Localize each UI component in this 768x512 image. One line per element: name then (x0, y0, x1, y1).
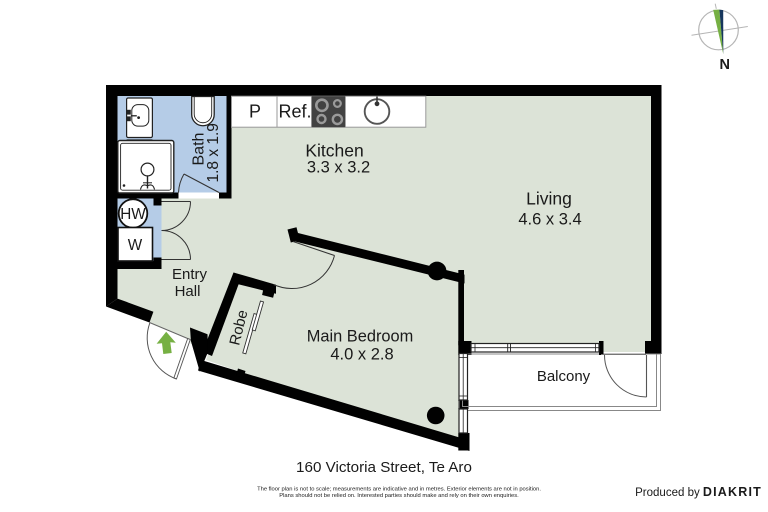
svg-text:HW: HW (120, 206, 146, 223)
svg-text:Produced by DIAKRIT: Produced by DIAKRIT (635, 485, 762, 499)
svg-text:Main Bedroom: Main Bedroom (307, 328, 414, 346)
svg-text:Entry: Entry (172, 266, 208, 283)
svg-text:1.8 x 1.9: 1.8 x 1.9 (205, 123, 222, 182)
svg-text:Balcony: Balcony (537, 368, 591, 385)
svg-text:Hall: Hall (175, 283, 201, 300)
svg-text:Living: Living (526, 189, 572, 209)
svg-text:4.0 x 2.8: 4.0 x 2.8 (330, 346, 393, 364)
svg-text:P: P (249, 102, 261, 122)
svg-text:Kitchen: Kitchen (305, 141, 363, 161)
svg-text:N: N (720, 57, 730, 73)
svg-text:Ref.: Ref. (278, 102, 311, 122)
svg-text:The floor plan is not to scale: The floor plan is not to scale; measurem… (257, 487, 541, 493)
svg-text:W: W (128, 237, 143, 254)
svg-text:4.6 x 3.4: 4.6 x 3.4 (518, 211, 581, 229)
svg-text:Plans should not be relied on.: Plans should not be relied on. Intereste… (279, 493, 519, 499)
svg-text:3.3 x 3.2: 3.3 x 3.2 (307, 159, 370, 177)
svg-text:160 Victoria Street, Te Aro: 160 Victoria Street, Te Aro (296, 459, 472, 476)
